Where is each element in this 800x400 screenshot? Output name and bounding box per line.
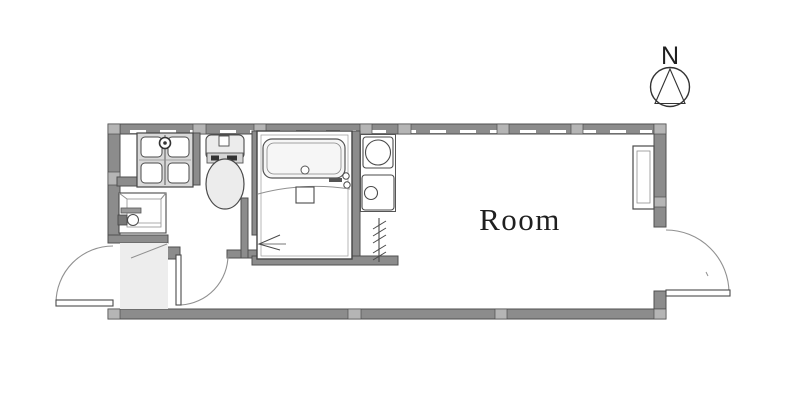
side-door-handle-tick bbox=[706, 272, 708, 276]
wall-joint bbox=[495, 309, 507, 319]
bath-knob-icon bbox=[343, 173, 349, 179]
tall-window-unit bbox=[633, 146, 654, 209]
floorplan-page: N bbox=[0, 0, 800, 400]
toilet bbox=[206, 135, 244, 209]
wall-right-upper bbox=[654, 124, 666, 227]
toilet-flush-button bbox=[219, 136, 229, 146]
washroom-door bbox=[176, 255, 228, 305]
wall-segment bbox=[241, 198, 248, 258]
bath-faucet-icon bbox=[329, 178, 342, 182]
washroom-door-arc bbox=[181, 255, 228, 305]
wall-joint bbox=[654, 124, 666, 134]
faucet-icon bbox=[121, 208, 141, 213]
basin-control bbox=[118, 215, 127, 225]
entrance-door bbox=[56, 246, 113, 306]
wall-joint bbox=[348, 309, 361, 319]
side-door-leaf bbox=[666, 290, 730, 296]
wall-segment bbox=[108, 235, 168, 243]
pan-drain-dot bbox=[163, 141, 167, 145]
wall-right-lower bbox=[654, 291, 666, 309]
floorplan-drawing: N bbox=[0, 0, 800, 400]
wall-bottom bbox=[108, 309, 666, 319]
wall-joint bbox=[654, 309, 666, 319]
washing-machine-pan bbox=[137, 133, 193, 187]
side-door-arc bbox=[666, 230, 729, 293]
genkan-entrance bbox=[120, 243, 168, 309]
wall-segment bbox=[193, 133, 200, 185]
bath-floor-drain bbox=[296, 187, 314, 203]
unit-bath bbox=[257, 131, 352, 259]
entrance-door-leaf bbox=[56, 300, 113, 306]
north-label: N bbox=[661, 42, 679, 70]
wall-segment bbox=[352, 131, 360, 265]
washbasin bbox=[118, 193, 166, 233]
toilet-bowl bbox=[206, 159, 244, 209]
pan-corner bbox=[168, 163, 189, 183]
pan-corner bbox=[141, 137, 162, 157]
wall-joint bbox=[654, 197, 666, 207]
north-indicator: N bbox=[651, 42, 690, 107]
wall-joint bbox=[497, 124, 509, 134]
wall-joint bbox=[571, 124, 583, 134]
kitchen-sink-bowl bbox=[366, 140, 391, 165]
entrance-door-arc bbox=[56, 246, 113, 303]
wall-joint bbox=[398, 124, 411, 134]
stove-burner-icon bbox=[365, 187, 378, 200]
wall-segment bbox=[117, 177, 138, 186]
kitchen bbox=[361, 135, 396, 263]
side-door bbox=[666, 230, 730, 296]
wall-joint bbox=[108, 124, 120, 134]
pan-corner bbox=[168, 137, 189, 157]
tub-drain-icon bbox=[301, 166, 309, 174]
wall-joint bbox=[108, 309, 120, 319]
bath-knob-icon bbox=[344, 182, 350, 188]
wall-joint bbox=[360, 124, 372, 134]
room-label: Room bbox=[479, 202, 561, 237]
pan-corner bbox=[141, 163, 162, 183]
washroom-door-leaf bbox=[176, 255, 181, 305]
compass-triangle-icon bbox=[655, 69, 685, 104]
basin-drain-icon bbox=[128, 215, 139, 226]
toilet-control bbox=[211, 156, 219, 161]
window-frame bbox=[633, 146, 654, 209]
refrigerator-space-hatch bbox=[373, 218, 386, 262]
